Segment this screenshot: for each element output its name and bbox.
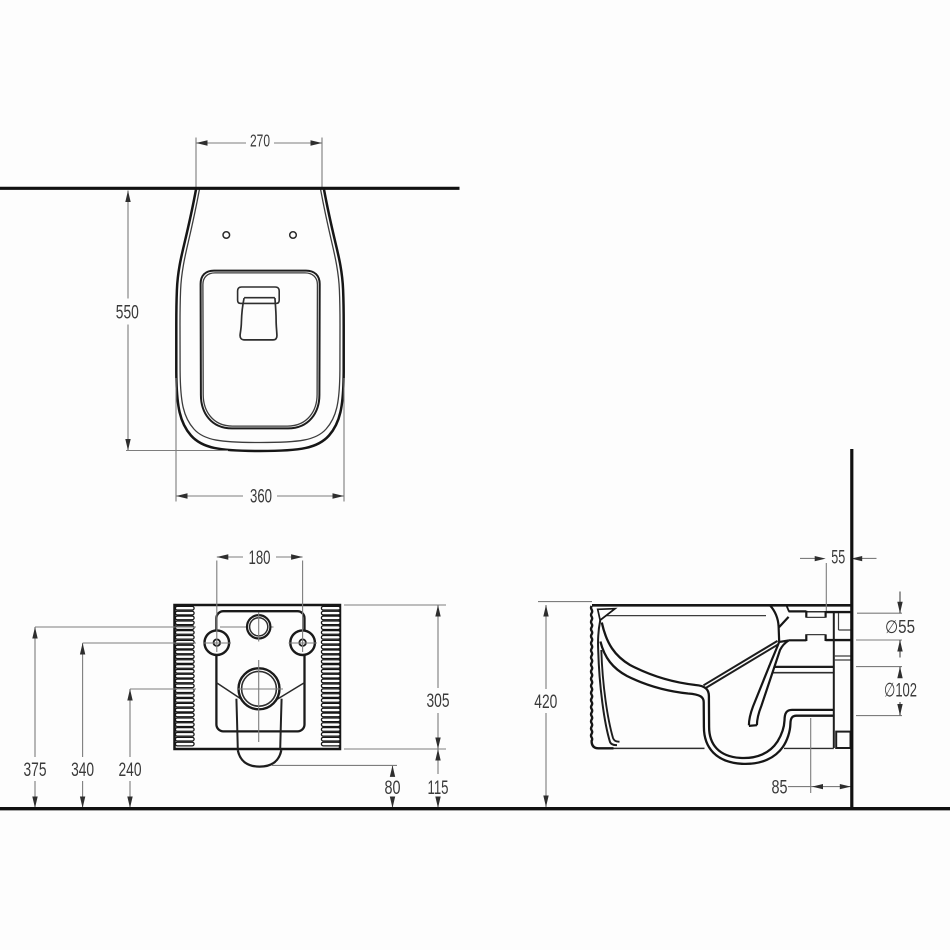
- svg-text:305: 305: [427, 690, 450, 712]
- svg-text:80: 80: [385, 777, 401, 799]
- svg-text:85: 85: [772, 777, 788, 799]
- svg-text:270: 270: [250, 130, 270, 150]
- svg-text:550: 550: [116, 302, 139, 324]
- svg-text:180: 180: [249, 547, 271, 569]
- svg-text:420: 420: [534, 691, 557, 713]
- svg-text:∅102: ∅102: [884, 680, 917, 702]
- svg-text:375: 375: [24, 759, 47, 781]
- svg-text:240: 240: [119, 759, 142, 781]
- svg-text:∅55: ∅55: [885, 617, 915, 637]
- svg-text:360: 360: [250, 486, 272, 508]
- svg-text:340: 340: [71, 759, 94, 781]
- svg-text:55: 55: [831, 546, 845, 568]
- svg-text:115: 115: [428, 777, 449, 799]
